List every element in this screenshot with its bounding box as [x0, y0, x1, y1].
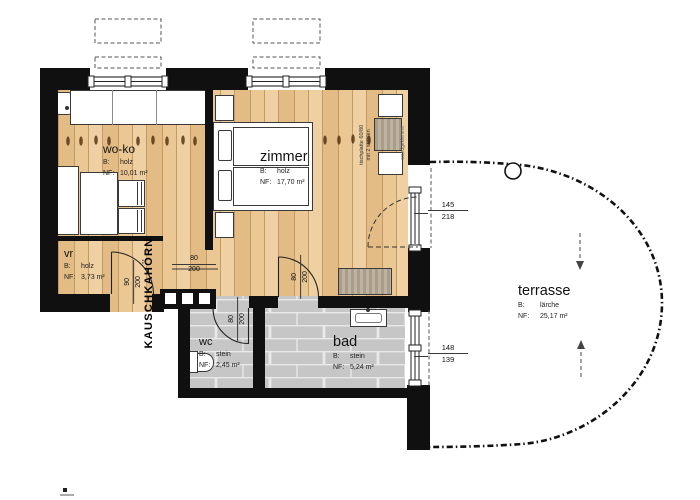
area-value: 2,45 m²: [216, 361, 240, 372]
terrace-door-window: [368, 168, 431, 251]
heater-cell: [199, 293, 210, 304]
area-value: 5,24 m²: [350, 363, 374, 374]
dim-wc-door: 80200: [228, 297, 248, 341]
terrace-column: [505, 163, 521, 179]
material-value: holz: [277, 167, 290, 178]
area-label: NF:: [518, 312, 540, 323]
woko-table: [80, 172, 118, 235]
room-name: zimmer: [260, 149, 308, 165]
room-label-wc: wc B:stein NF:2,45 m²: [199, 336, 240, 371]
area-value: 17,70 m²: [277, 178, 305, 189]
woko-chair: [118, 208, 145, 234]
material-value: lärche: [540, 301, 559, 312]
window-top-2: [246, 19, 326, 87]
room-label-bad: bad B:stein NF:5,24 m²: [333, 334, 374, 373]
material-label: B:: [518, 301, 540, 312]
area-label: NF:: [333, 363, 350, 374]
wall-left: [40, 68, 58, 312]
bad-window: [409, 310, 429, 386]
area-value: 25,17 m²: [540, 312, 568, 323]
pillow: [218, 170, 232, 201]
scale-mark: [60, 488, 74, 495]
dim-terrace-door: 145218: [428, 200, 468, 221]
area-value: 10,01 m²: [120, 169, 148, 180]
table-side-annotation: wandgeklemmt: [400, 118, 406, 168]
bad-faucet-icon: [366, 308, 370, 312]
dim-entrance-door: 90200: [124, 260, 144, 304]
nightstand: [215, 212, 234, 238]
room-label-terrasse: terrasse B:lärche NF:25,17 m²: [518, 283, 580, 322]
heater-cell: [165, 293, 176, 304]
wall-bottom: [178, 388, 430, 398]
zimmer-chair: [378, 94, 403, 117]
dim-bad-door: 80200: [291, 255, 311, 299]
area-label: NF:: [260, 178, 277, 189]
wall-right-upper: [408, 68, 430, 165]
room-label-zimmer: zimmer B:holz NF:17,70 m²: [260, 149, 308, 188]
material-value: stein: [216, 350, 231, 361]
area-label: NF:: [103, 169, 120, 180]
wall-woko-zimmer-divider: [205, 90, 213, 250]
kitchen-counter: [70, 90, 207, 125]
material-label: B:: [103, 158, 120, 169]
material-value: stein: [350, 352, 365, 363]
wall-right-pillar: [407, 385, 430, 450]
area-value: 3,73 m²: [81, 273, 105, 284]
room-name: wo-ko: [103, 142, 148, 156]
room-label-woko: wo-ko B:holz NF:10,01 m²: [103, 142, 148, 179]
wall-top-mid: [166, 68, 248, 90]
kitchen-faucet-icon: [65, 106, 69, 110]
counter-divider: [156, 90, 157, 125]
room-name: bad: [333, 334, 374, 350]
pillow: [218, 130, 232, 161]
wall-heater-element: [160, 289, 216, 309]
table-annotation: tischplatte 60/80 mit 2 stühlen: [359, 115, 373, 175]
room-name: vr: [64, 248, 105, 260]
wall-wc-bad-divider: [253, 296, 265, 398]
floor-plan: wo-ko B:holz NF:10,01 m² zimmer B:holz N…: [0, 0, 700, 500]
area-label: NF:: [64, 273, 81, 284]
nightstand: [215, 95, 234, 121]
zimmer-sideboard: [338, 268, 392, 295]
window-top-1: [88, 19, 168, 87]
material-value: holz: [120, 158, 133, 169]
material-label: B:: [199, 350, 216, 361]
material-label: B:: [64, 262, 81, 273]
project-title: KAUSCHKAHÖRN: [143, 233, 155, 353]
zimmer-wall-table: [374, 118, 402, 151]
wall-right-mid: [408, 248, 430, 312]
wall-wc-left: [178, 309, 190, 398]
room-label-vr: vr B:holz NF:3,73 m²: [64, 248, 105, 283]
dim-corridor-opening: 80200: [172, 255, 216, 275]
heater-cell: [182, 293, 193, 304]
dim-bad-window: 148139: [428, 343, 468, 364]
material-value: holz: [81, 262, 94, 273]
room-name: terrasse: [518, 283, 580, 299]
material-label: B:: [333, 352, 350, 363]
woko-chair: [118, 180, 145, 207]
area-label: NF:: [199, 361, 216, 372]
material-label: B:: [260, 167, 277, 178]
wall-vr-bottom: [40, 294, 110, 312]
counter-divider: [112, 90, 113, 125]
